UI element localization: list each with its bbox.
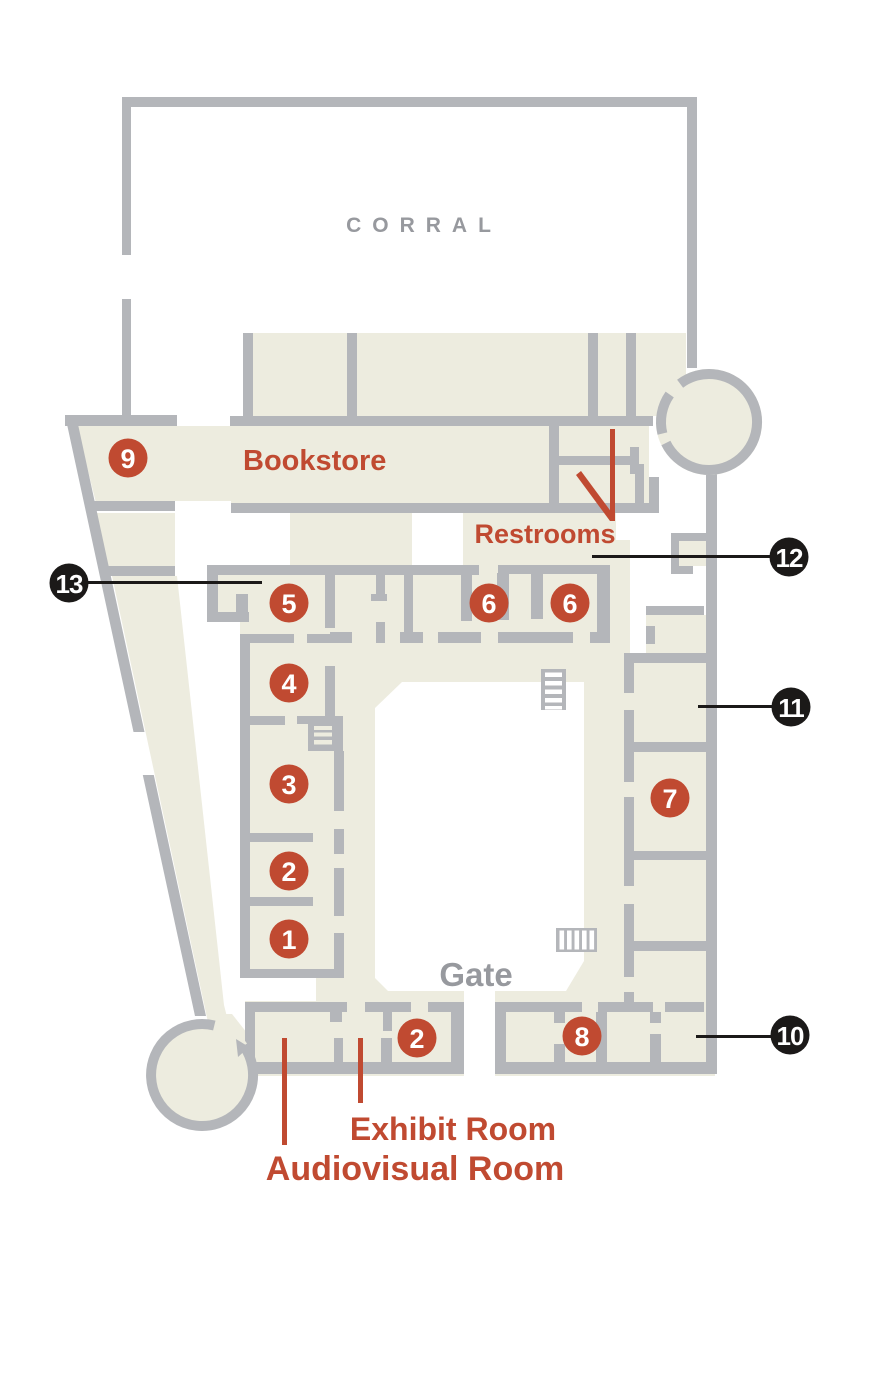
svg-text:Restrooms: Restrooms	[474, 519, 615, 549]
svg-text:6: 6	[562, 589, 577, 619]
svg-text:Bookstore: Bookstore	[243, 445, 386, 477]
svg-text:1: 1	[281, 925, 296, 955]
svg-text:Gate: Gate	[439, 956, 512, 993]
svg-text:Audiovisual Room: Audiovisual Room	[266, 1150, 564, 1188]
svg-text:3: 3	[281, 770, 296, 800]
svg-text:2: 2	[409, 1024, 424, 1054]
svg-text:Exhibit Room: Exhibit Room	[350, 1111, 556, 1147]
svg-text:9: 9	[120, 444, 135, 474]
svg-text:6: 6	[481, 589, 496, 619]
svg-text:10: 10	[777, 1021, 804, 1051]
svg-text:7: 7	[662, 784, 677, 814]
svg-text:5: 5	[281, 589, 296, 619]
svg-text:11: 11	[778, 693, 804, 723]
svg-text:2: 2	[281, 857, 296, 887]
svg-text:8: 8	[574, 1022, 589, 1052]
svg-text:12: 12	[776, 543, 803, 573]
svg-text:4: 4	[281, 669, 296, 699]
svg-text:CORRAL: CORRAL	[346, 214, 502, 237]
svg-text:13: 13	[56, 569, 83, 599]
